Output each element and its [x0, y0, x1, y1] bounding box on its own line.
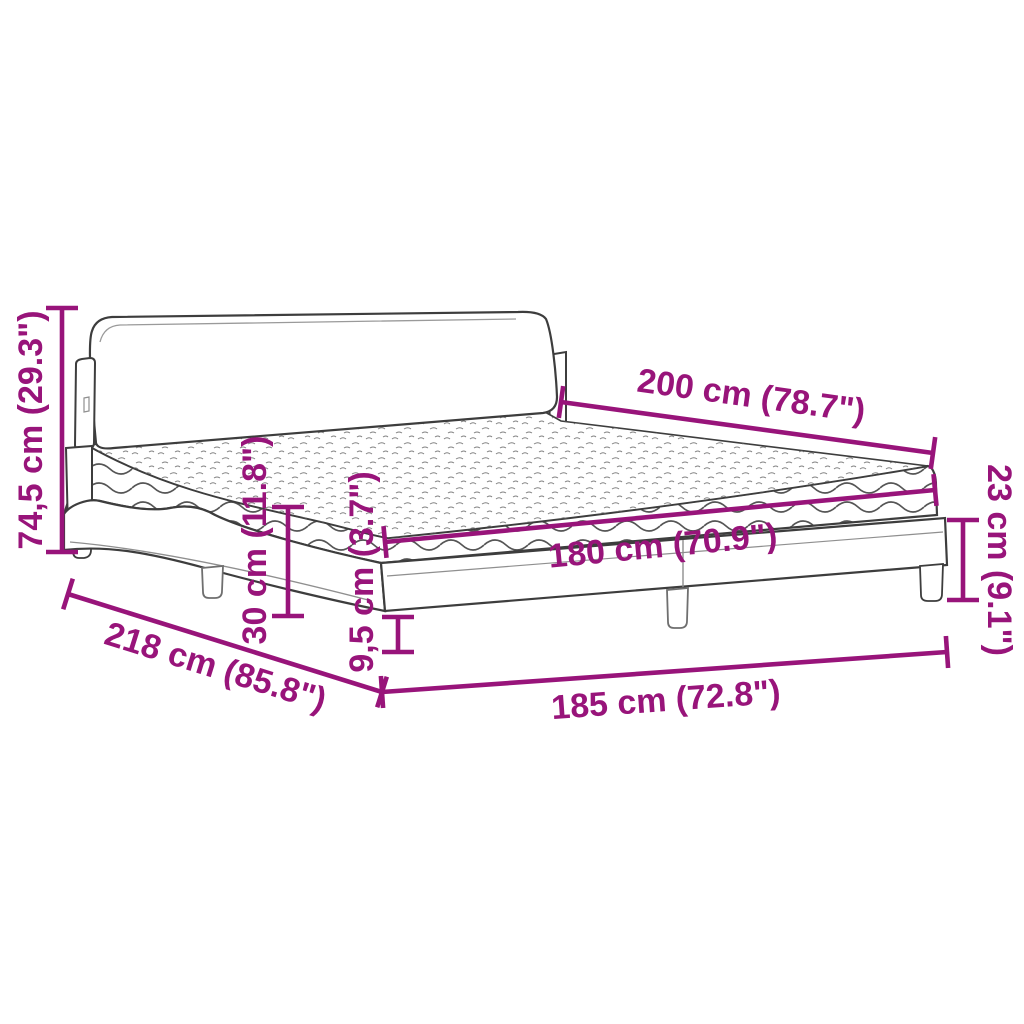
dimension-line-rail-step [382, 617, 414, 652]
bed-dimension-diagram: 74,5 cm (29.3") 200 cm (78.7") 23 cm (9.… [0, 0, 1024, 1024]
headboard-post-bracket [84, 397, 89, 412]
dim-label-frame-height: 23 cm (9.1") [980, 464, 1018, 656]
dim-label-mattress-height: 30 cm (11.8") [236, 436, 274, 645]
dim-label-bed-width: 185 cm (72.8") [550, 673, 782, 727]
bed-leg-left [202, 566, 223, 598]
dim-label-total-height: 74,5 cm (29.3") [12, 310, 50, 549]
dim-label-rail-step: 9,5 cm (3.7") [343, 471, 381, 672]
bed-diagram-canvas: 74,5 cm (29.3") 200 cm (78.7") 23 cm (9.… [0, 0, 1024, 1024]
bed-leg-right [920, 564, 943, 601]
dim-label-mattress-length: 200 cm (78.7") [635, 362, 868, 431]
dimension-line-frame-height [947, 520, 979, 600]
bed-leg-middle [667, 588, 688, 628]
